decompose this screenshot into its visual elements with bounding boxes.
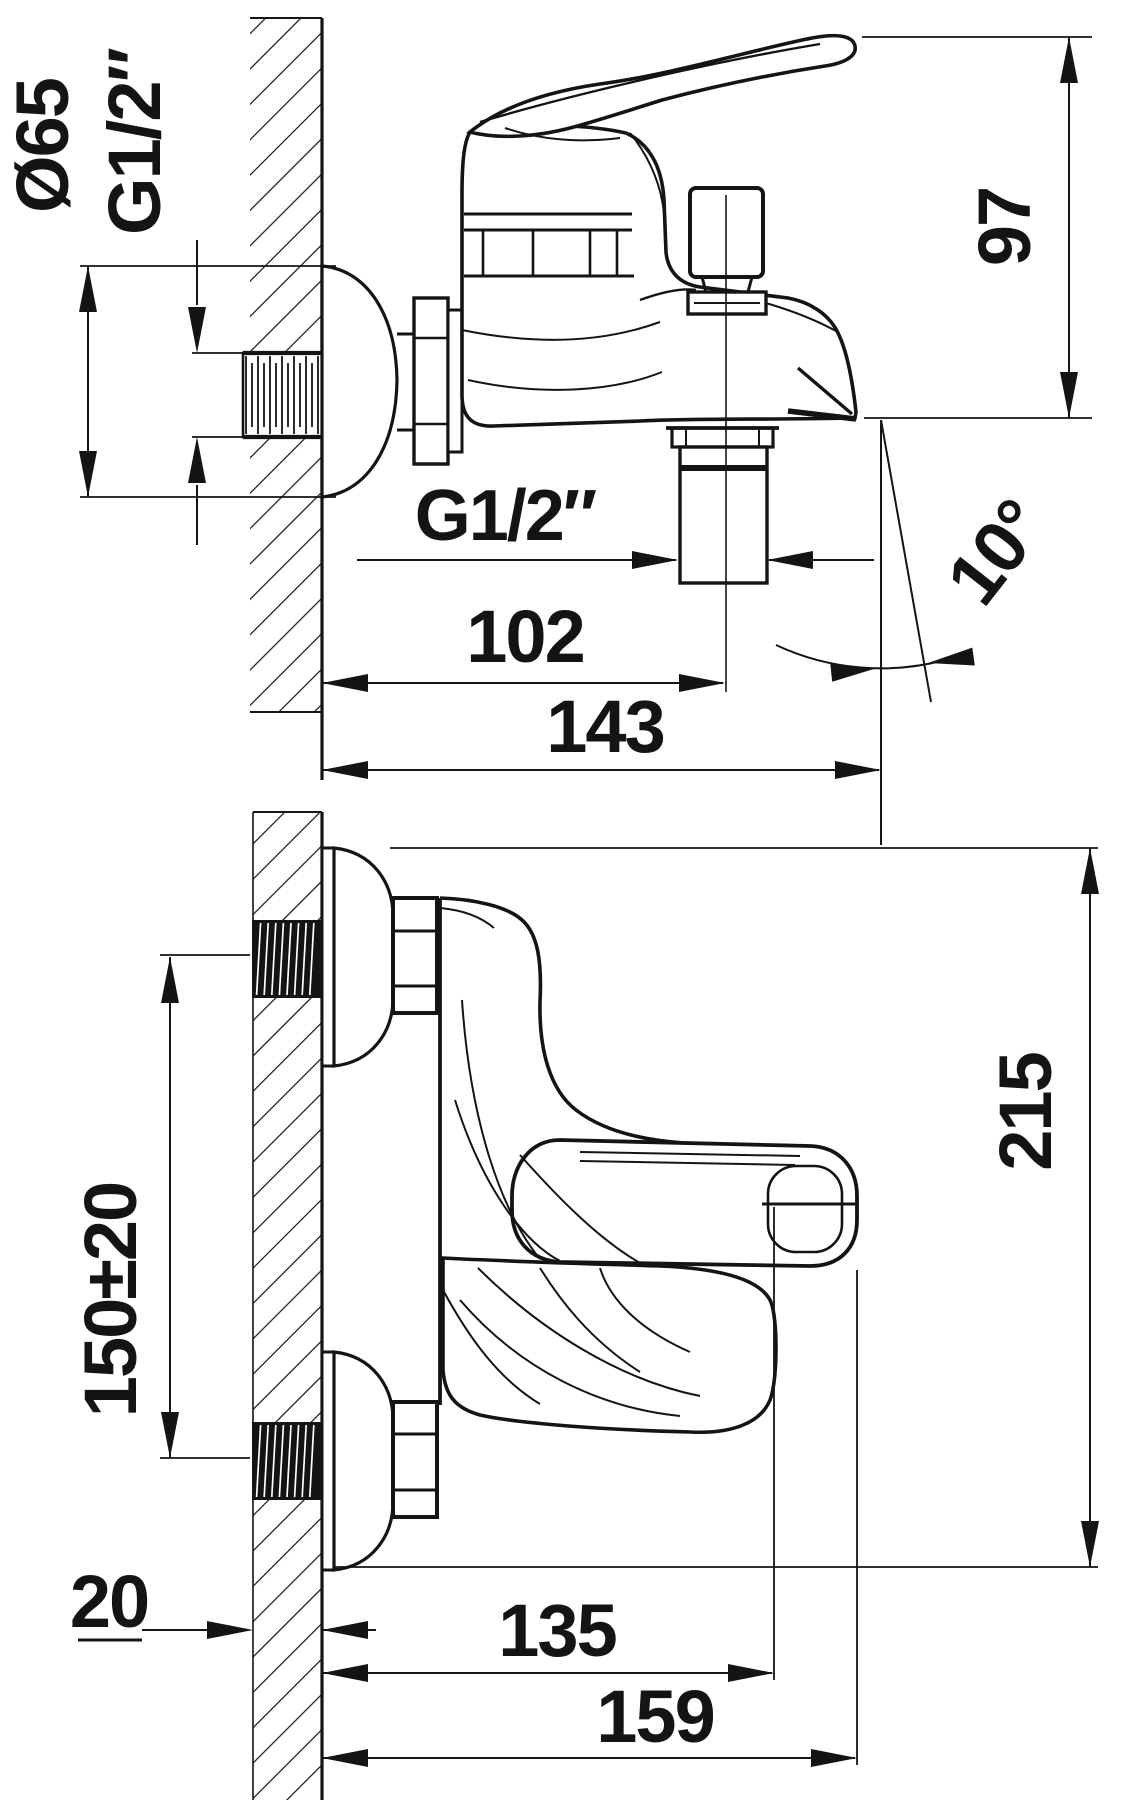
drawing-page: Ø65 G1/2″ 97 G1/2″ xyxy=(0,0,1132,1800)
dim-overall-reach-label: 143 xyxy=(546,685,663,768)
lower-thread xyxy=(253,1423,322,1499)
dim-overall-height-label: 215 xyxy=(984,1052,1067,1170)
dim-hose-thread-label: G1/2″ xyxy=(415,476,597,556)
diverter-knob xyxy=(688,188,766,314)
side-view: Ø65 G1/2″ 97 G1/2″ xyxy=(1,18,1092,845)
dim-overall-width-label: 159 xyxy=(596,1675,713,1758)
front-view: 215 150±20 20 135 xyxy=(69,812,1099,1800)
dim-spout-width-label: 135 xyxy=(498,1589,616,1672)
upper-nut xyxy=(393,898,437,1013)
dim-wall-thread: G1/2″ xyxy=(93,48,243,545)
lever-handle-side xyxy=(470,36,855,141)
escutcheon-side xyxy=(322,266,414,497)
spout-front xyxy=(443,1258,776,1432)
dim-wall-thickness-label: 20 xyxy=(70,1560,148,1643)
escutcheon-collar xyxy=(397,334,414,430)
dim-spout-height: 97 xyxy=(862,37,1092,418)
upper-escutcheon xyxy=(322,848,393,1066)
dim-spout-angle: 10° xyxy=(776,420,1061,845)
faucet-body-side xyxy=(462,125,856,426)
lower-nut xyxy=(393,1402,437,1517)
dim-spout-height-label: 97 xyxy=(963,188,1046,266)
inlet-thread-side xyxy=(243,353,322,437)
dim-inlet-spacing-label: 150±20 xyxy=(69,1183,152,1417)
upper-thread xyxy=(253,921,322,997)
lower-escutcheon xyxy=(322,1352,393,1570)
dim-inlet-spacing: 150±20 xyxy=(69,955,250,1458)
dim-flange-diameter-label: Ø65 xyxy=(1,78,84,213)
dim-hose-center-label: 102 xyxy=(466,595,583,678)
mounting-nut-side xyxy=(414,298,462,464)
dim-overall-reach: 143 xyxy=(322,685,881,779)
dim-hose-thread: G1/2″ xyxy=(357,476,874,569)
dim-spout-angle-label: 10° xyxy=(931,485,1062,620)
dim-wall-thread-label: G1/2″ xyxy=(93,48,176,235)
dim-wall-thickness: 20 xyxy=(70,1560,376,1643)
dim-hose-center: 102 xyxy=(322,595,725,692)
